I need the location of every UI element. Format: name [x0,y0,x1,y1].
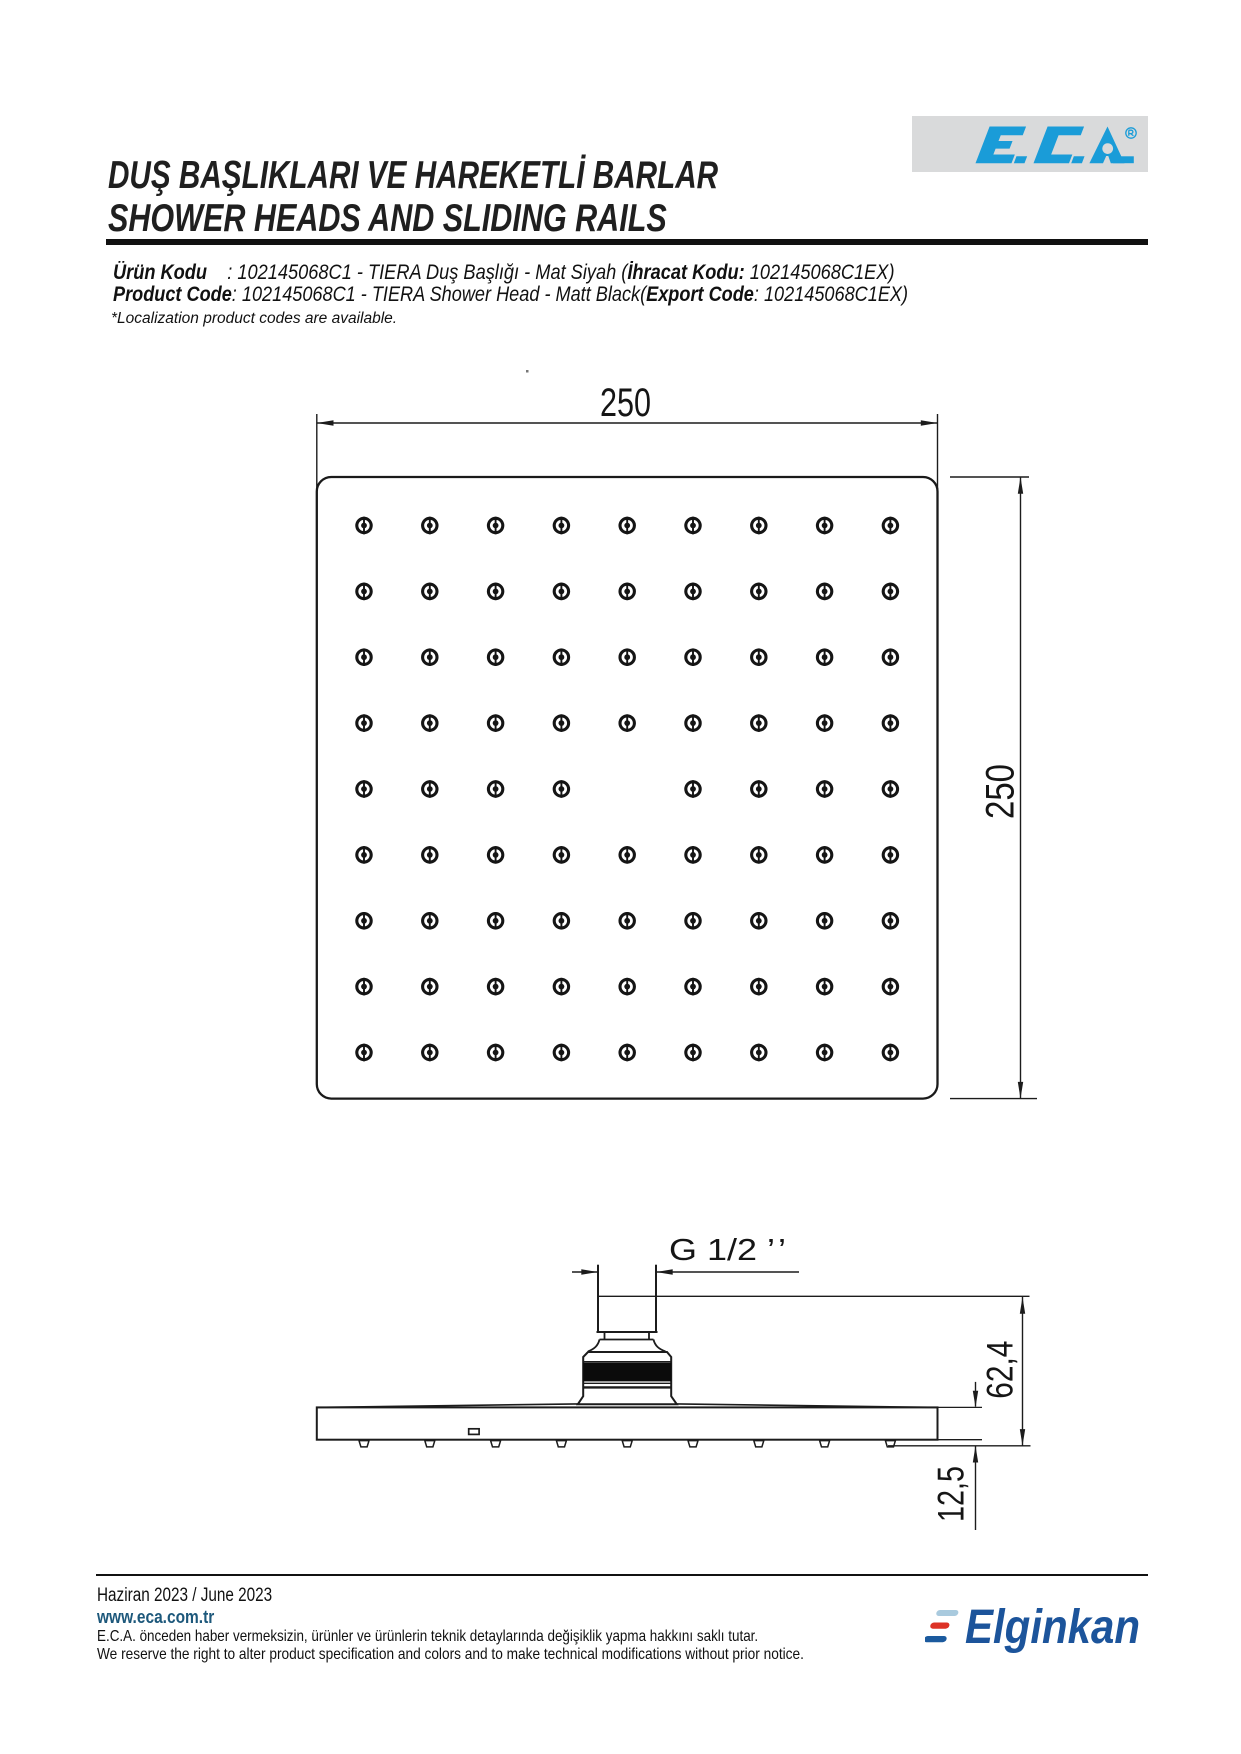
svg-text:250: 250 [600,381,651,425]
svg-text:62,4: 62,4 [980,1341,1021,1399]
svg-text:12,5: 12,5 [931,1466,972,1522]
svg-text:250: 250 [979,764,1023,819]
svg-text:G 1/2 ’ ’: G 1/2 ’ ’ [669,1232,786,1267]
svg-text:Elginkan: Elginkan [965,1601,1140,1654]
